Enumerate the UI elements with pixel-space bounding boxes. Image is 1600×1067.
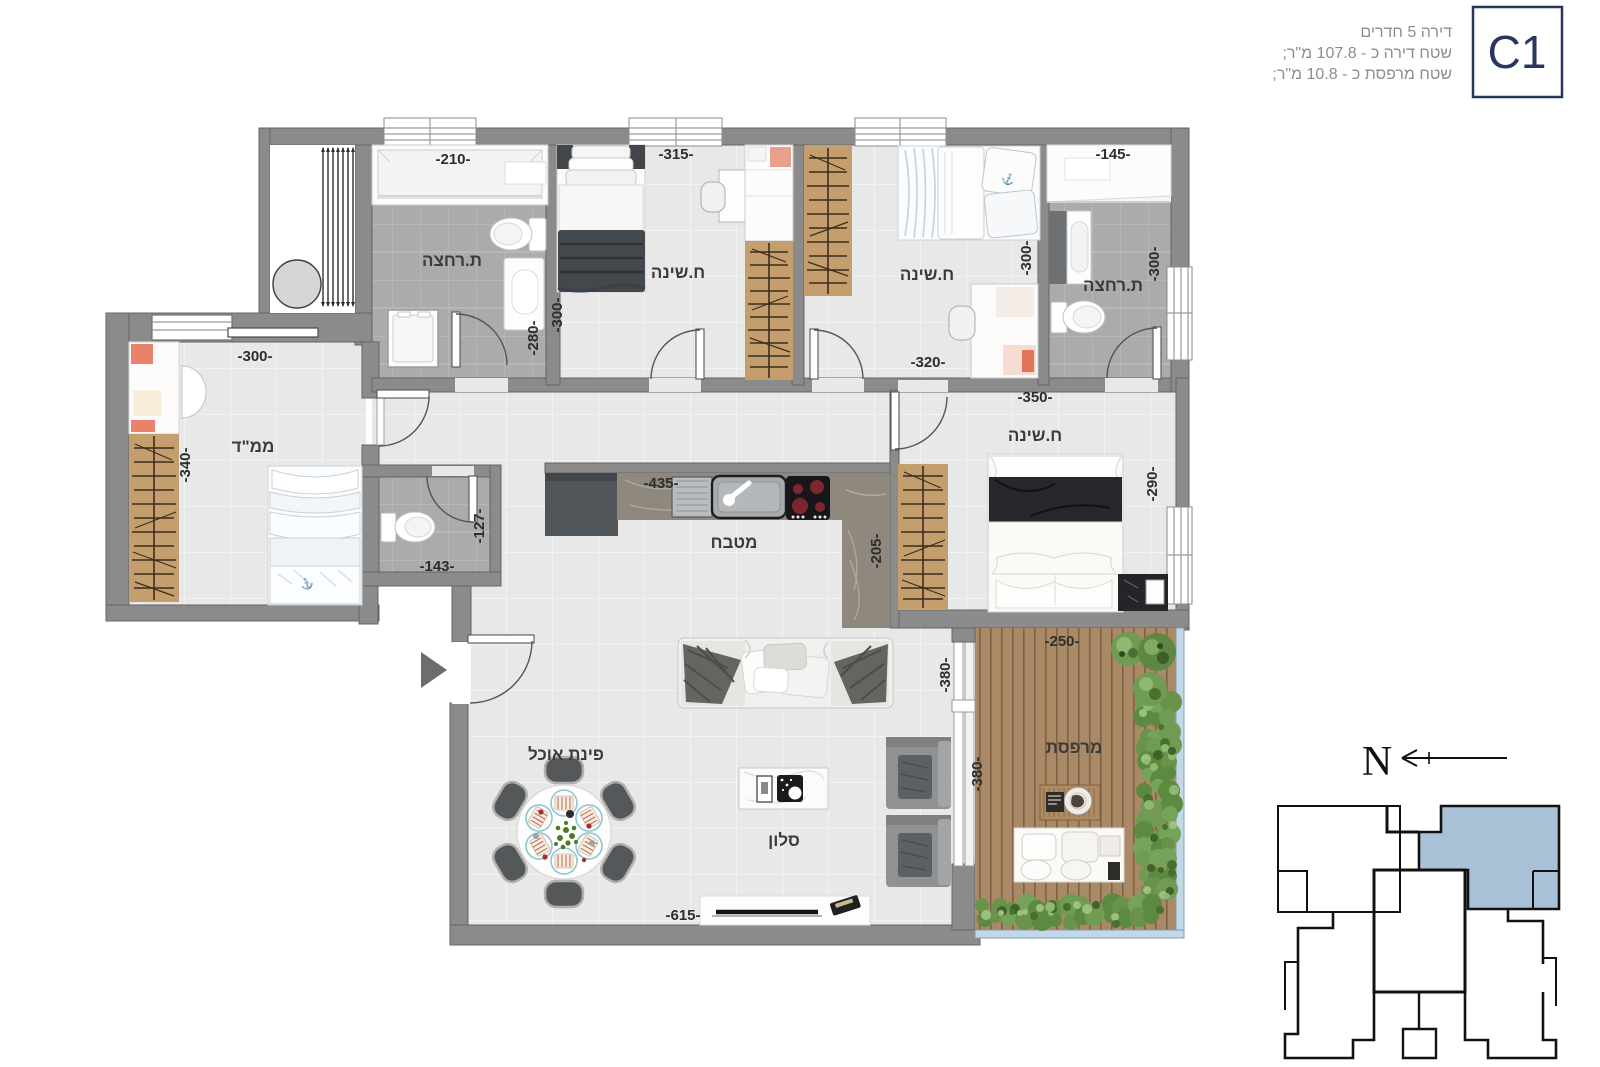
svg-text:-145-: -145- [1095,146,1130,163]
svg-text:-340-: -340- [177,447,194,482]
svg-text:ח.שינה: ח.שינה [651,263,705,282]
svg-text:-127-: -127- [471,508,488,543]
svg-text:-205-: -205- [868,533,885,568]
svg-text:N: N [1362,739,1392,785]
svg-text:-380-: -380- [937,657,954,692]
svg-text:שטח דירה כ - 107.8 מ"ר;: שטח דירה כ - 107.8 מ"ר; [1282,45,1452,62]
svg-text:-615-: -615- [665,907,700,924]
svg-text:-300-: -300- [237,348,272,365]
svg-text:-250-: -250- [1044,633,1079,650]
svg-text:פינת אוכל: פינת אוכל [528,745,604,764]
svg-text:דירה 5 חדרים: דירה 5 חדרים [1360,24,1452,41]
svg-text:שטח מרפסת כ - 10.8 מ"ר;: שטח מרפסת כ - 10.8 מ"ר; [1272,66,1452,83]
svg-text:-300-: -300- [1146,246,1163,281]
svg-text:מטבח: מטבח [711,533,758,552]
svg-text:מרפסת: מרפסת [1046,738,1103,757]
svg-text:ח.שינה: ח.שינה [900,265,954,284]
svg-text:-380-: -380- [969,756,986,791]
svg-text:ת.רחצה: ת.רחצה [422,251,482,270]
svg-text:-210-: -210- [435,151,470,168]
svg-text:-280-: -280- [525,320,542,355]
svg-text:ממ"ד: ממ"ד [232,437,275,456]
svg-text:ח.שינה: ח.שינה [1008,426,1062,445]
svg-text:-300-: -300- [1018,240,1035,275]
svg-text:-300-: -300- [549,297,566,332]
svg-text:-315-: -315- [658,146,693,163]
svg-text:-435-: -435- [643,475,678,492]
svg-text:C1: C1 [1488,26,1547,78]
svg-text:-350-: -350- [1017,389,1052,406]
svg-text:סלון: סלון [768,831,800,850]
svg-text:-320-: -320- [910,354,945,371]
svg-text:-143-: -143- [419,558,454,575]
svg-text:-290-: -290- [1144,466,1161,501]
svg-text:ת.רחצה: ת.רחצה [1083,276,1143,295]
